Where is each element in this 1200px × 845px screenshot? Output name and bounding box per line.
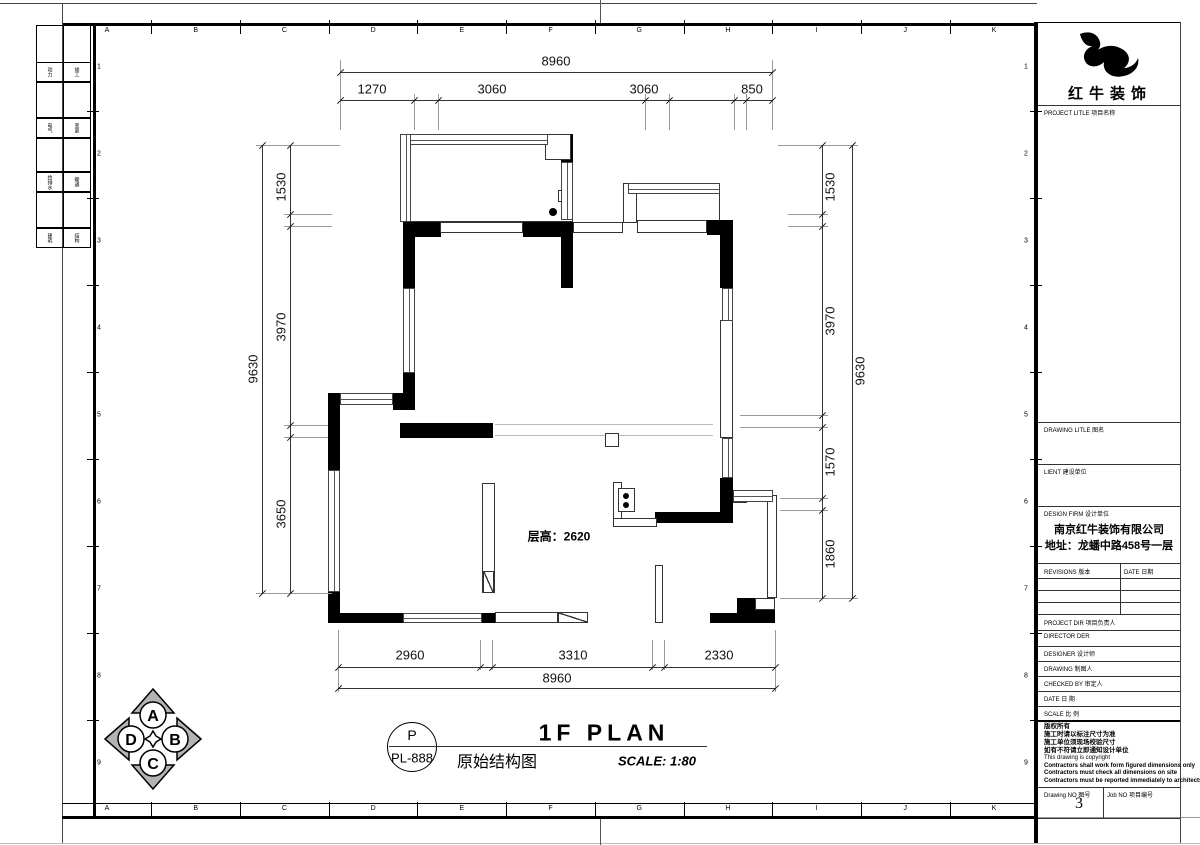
- stamp-cell: 变更: [63, 118, 91, 138]
- row-tick: [87, 285, 99, 286]
- col-letter: C: [282, 805, 287, 812]
- dim-bottom-seg: 2960: [396, 648, 425, 663]
- drawing-title-en: 1F PLAN: [539, 720, 670, 747]
- stamp-cell: 暖通: [63, 172, 91, 192]
- extension-line: [338, 630, 339, 692]
- col-letter: G: [636, 805, 641, 812]
- thin-wall: [655, 565, 663, 623]
- thin-wall: [767, 495, 777, 598]
- window-horizontal: [340, 393, 393, 405]
- stamp-cell: [63, 192, 91, 228]
- copyright-note-line: This drawing is copyright: [1044, 755, 1200, 763]
- row-number: 9: [97, 760, 101, 767]
- window-vertical: [403, 288, 415, 373]
- col-tick: [417, 20, 418, 34]
- compass-label-w: D: [125, 732, 137, 749]
- title-block-line: [1038, 676, 1180, 677]
- col-tick: [240, 20, 241, 34]
- col-tick: [240, 802, 241, 816]
- tb-row-label: CHECKED BY 审定人: [1044, 679, 1103, 688]
- copyright-note-line: Contractors shall work form figured dime…: [1044, 763, 1200, 771]
- dim-top-seg: 3060: [478, 82, 507, 97]
- row-number: 8: [1024, 673, 1028, 680]
- row-number: 6: [97, 499, 101, 506]
- col-tick: [861, 802, 862, 816]
- door-hatch: [483, 571, 494, 593]
- dimension-line: [340, 72, 772, 73]
- tb-firm-address: 地址：龙蟠中路458号一层: [1045, 537, 1173, 553]
- col-letter: D: [371, 805, 376, 812]
- extension-line: [740, 427, 828, 428]
- tb-job-no-label: Job NO 项目编号: [1107, 790, 1153, 799]
- title-block-line: [1038, 706, 1180, 707]
- stamp-row: [36, 139, 92, 173]
- col-tick: [329, 20, 330, 34]
- wall-segment: [393, 393, 415, 410]
- tb-row-label: DRAWING 制图人: [1044, 664, 1092, 673]
- stamp-cell: [36, 25, 64, 63]
- thin-wall: [440, 222, 523, 233]
- col-letter: E: [459, 27, 464, 34]
- row-number: 1: [1024, 64, 1028, 71]
- stamp-cell: 结构: [63, 228, 91, 248]
- dim-bottom-overall: 8960: [543, 671, 572, 686]
- row-tick: [1030, 459, 1042, 460]
- row-tick: [1030, 633, 1042, 634]
- col-tick: [506, 802, 507, 816]
- row-tick: [1030, 111, 1042, 112]
- dim-left-overall: 9630: [246, 355, 261, 384]
- col-tick: [950, 20, 951, 34]
- window-vertical: [722, 438, 733, 478]
- row-number: 7: [97, 586, 101, 593]
- dim-right-seg: 1530: [823, 173, 838, 202]
- thin-wall: [637, 220, 707, 233]
- frame-line: [0, 3, 1037, 4]
- tb-revisions-header: REVISIONS 版本: [1044, 567, 1090, 576]
- row-number: 4: [97, 325, 101, 332]
- pipe-dot: [623, 493, 629, 499]
- wall-segment: [720, 235, 733, 288]
- tb-row-label: PROJECT DIR 项目负责人: [1044, 618, 1116, 627]
- window-horizontal: [400, 134, 548, 145]
- col-tick: [772, 802, 773, 816]
- row-tick: [87, 372, 99, 373]
- partition-line: [495, 424, 713, 425]
- extension-line: [256, 593, 332, 594]
- col-tick: [595, 20, 596, 34]
- tb-row-label: DESIGNER 设计师: [1044, 649, 1095, 658]
- wall-segment: [523, 222, 573, 237]
- row-number: 1: [97, 64, 101, 71]
- title-block-line: [1038, 105, 1180, 106]
- row-tick: [87, 546, 99, 547]
- extension-line: [256, 145, 340, 146]
- title-block-line: [1038, 614, 1180, 615]
- title-block-line: [1038, 720, 1180, 722]
- col-letter: K: [992, 27, 997, 34]
- compass-rose: A B C D: [104, 688, 202, 792]
- stamp-row: [36, 25, 92, 63]
- col-letter: A: [105, 27, 110, 34]
- tb-client-label: LIENT 建设单位: [1044, 467, 1087, 476]
- discipline-stamp-strip: 动力竣工电气变更给排水暖通建筑结构: [36, 25, 92, 249]
- col-tick: [329, 802, 330, 816]
- copyright-note-line: 如有不符请立即通知设计单位: [1044, 747, 1200, 755]
- title-block-line: [1038, 422, 1180, 423]
- wall-segment: [655, 512, 733, 523]
- copyright-note-line: 版权所有: [1044, 723, 1200, 731]
- wall-segment: [403, 373, 415, 393]
- wall-segment: [400, 423, 493, 438]
- col-letter: C: [282, 27, 287, 34]
- row-number: 2: [97, 151, 101, 158]
- dim-right-seg: 1860: [823, 540, 838, 569]
- col-letter: J: [904, 27, 908, 34]
- floor-height-label: 层高：2620: [528, 528, 591, 545]
- drawing-title-cn: 原始结构图: [457, 748, 537, 772]
- col-letter: I: [816, 27, 818, 34]
- title-block-line: [1038, 787, 1180, 788]
- col-letter: H: [725, 805, 730, 812]
- title-block-line: [1038, 563, 1180, 564]
- col-letter: B: [193, 27, 198, 34]
- stamp-cell: [36, 192, 64, 228]
- row-tick: [87, 459, 99, 460]
- row-tick: [1030, 720, 1042, 721]
- drawing-bubble-code: PL-888: [391, 751, 433, 766]
- stamp-cell: [63, 138, 91, 172]
- col-tick: [684, 802, 685, 816]
- stamp-cell: [36, 82, 64, 118]
- thin-wall: [755, 598, 775, 610]
- wall-segment: [403, 222, 441, 237]
- title-block-line: [1038, 590, 1180, 591]
- wall-segment: [328, 613, 403, 623]
- title-block-line: [1038, 691, 1180, 692]
- drawing-sheet: AABBCCDDEEFFGGHHIIJJKK112233445566778899…: [0, 0, 1200, 845]
- stamp-cell: [63, 25, 91, 63]
- tb-project-label: PROJECT LITLE 项目名称: [1044, 108, 1115, 117]
- dim-top-seg: 850: [741, 82, 763, 97]
- tb-row-label: DIRECTOR DER: [1044, 634, 1090, 640]
- dimension-line: [340, 100, 772, 101]
- dim-left-seg: 1530: [274, 173, 289, 202]
- row-number: 4: [1024, 325, 1028, 332]
- row-number: 7: [1024, 586, 1028, 593]
- row-number: 8: [97, 673, 101, 680]
- frame-line: [62, 816, 1037, 819]
- extension-line: [740, 415, 828, 416]
- company-logo-icon: [1074, 30, 1144, 82]
- stamp-row: 动力竣工: [36, 63, 92, 83]
- dim-top-seg: 3060: [630, 82, 659, 97]
- copyright-note-line: 施工单位须现场校验尺寸: [1044, 739, 1200, 747]
- dim-top-seg: 1270: [358, 82, 387, 97]
- row-number: 5: [1024, 412, 1028, 419]
- window-vertical: [328, 470, 340, 592]
- col-letter: A: [105, 805, 110, 812]
- title-block-line: [1038, 506, 1180, 507]
- extension-line: [778, 145, 858, 146]
- compass-center-star: [145, 731, 161, 747]
- row-number: 9: [1024, 760, 1028, 767]
- row-tick: [1030, 198, 1042, 199]
- wall-segment: [707, 220, 733, 235]
- row-number: 2: [1024, 151, 1028, 158]
- row-number: 5: [97, 412, 101, 419]
- extension-line: [775, 630, 776, 692]
- tb-drawing-no: 3: [1075, 795, 1083, 813]
- thin-wall: [495, 612, 558, 623]
- col-letter: J: [904, 805, 908, 812]
- tb-date-header: DATE 日期: [1124, 567, 1153, 576]
- col-letter: F: [548, 805, 552, 812]
- compass-label-n: A: [147, 708, 159, 725]
- title-block-line: [1038, 661, 1180, 662]
- stamp-cell: 给排水: [36, 172, 64, 192]
- col-letter: H: [725, 27, 730, 34]
- dim-left-seg: 3650: [274, 500, 289, 529]
- thin-wall: [720, 320, 733, 438]
- frame-line: [600, 819, 601, 845]
- col-letter: F: [548, 27, 552, 34]
- drawing-bubble-top: P: [407, 727, 416, 743]
- tb-drawing-label: DRAWING LITLE 图名: [1044, 425, 1104, 434]
- wall-segment: [710, 613, 775, 623]
- dim-bottom-seg: 2330: [705, 648, 734, 663]
- title-block-line: [1103, 787, 1104, 818]
- col-letter: E: [459, 805, 464, 812]
- row-tick: [1030, 546, 1042, 547]
- stamp-row: [36, 83, 92, 119]
- col-letter: G: [636, 27, 641, 34]
- dimension-line: [338, 667, 775, 668]
- stamp-cell: 动力: [36, 62, 64, 82]
- col-letter: D: [371, 27, 376, 34]
- row-number: 3: [1024, 238, 1028, 245]
- wall-segment: [328, 393, 340, 470]
- title-block-line: [1038, 630, 1180, 631]
- frame-line: [600, 0, 601, 23]
- door-hatch: [558, 612, 588, 623]
- tb-copyright-notes: 版权所有施工时请以标注尺寸为准施工单位须现场校验尺寸如有不符请立即通知设计单位T…: [1044, 723, 1200, 785]
- row-tick: [87, 633, 99, 634]
- pipe-dot: [549, 208, 557, 216]
- frame-line: [1036, 22, 1181, 23]
- pipe-dot: [746, 602, 754, 610]
- extension-line: [780, 598, 858, 599]
- copyright-note-line: Contractors must be reported immediately…: [1044, 778, 1200, 786]
- title-block-line: [1120, 563, 1121, 614]
- copyright-note-line: Contractors must check all dimensions on…: [1044, 770, 1200, 778]
- dim-top-overall: 8960: [542, 54, 571, 69]
- thin-wall: [613, 518, 657, 527]
- frame-line: [62, 803, 1037, 804]
- stamp-cell: 建筑: [36, 228, 64, 248]
- window-vertical: [722, 288, 733, 321]
- col-letter: K: [992, 805, 997, 812]
- col-tick: [861, 20, 862, 34]
- col-tick: [151, 802, 152, 816]
- frame-line: [62, 23, 1037, 26]
- dimension-line: [338, 688, 775, 689]
- stamp-cell: [63, 82, 91, 118]
- stamp-row: 电气变更: [36, 119, 92, 139]
- title-block-line: [1038, 464, 1180, 465]
- wall-segment: [561, 237, 573, 288]
- col-tick: [684, 20, 685, 34]
- copyright-note-line: 施工时请以标注尺寸为准: [1044, 731, 1200, 739]
- dim-right-overall: 9630: [853, 357, 868, 386]
- col-tick: [772, 20, 773, 34]
- dim-left-seg: 3970: [274, 313, 289, 342]
- row-tick: [87, 720, 99, 721]
- title-block-line: [1038, 646, 1180, 647]
- compass-label-s: C: [147, 756, 159, 773]
- stamp-row: 给排水暖通: [36, 173, 92, 193]
- stamp-cell: 电气: [36, 118, 64, 138]
- partition-line: [495, 435, 713, 436]
- col-letter: I: [816, 805, 818, 812]
- company-logo-text: 红牛装饰: [1068, 83, 1152, 104]
- pipe-dot: [623, 502, 629, 508]
- thin-wall: [605, 433, 619, 447]
- window-vertical: [561, 162, 573, 220]
- dim-bottom-seg: 3310: [559, 648, 588, 663]
- wall-segment: [403, 237, 415, 288]
- tb-firm-name: 南京红牛装饰有限公司: [1054, 521, 1164, 537]
- drawing-scale: SCALE: 1:80: [618, 754, 696, 769]
- window-horizontal: [403, 613, 482, 623]
- title-block-line: [1038, 818, 1180, 819]
- col-tick: [506, 20, 507, 34]
- row-number: 6: [1024, 499, 1028, 506]
- tb-firm-label: DESIGN FIRM 设计单位: [1044, 509, 1109, 518]
- title-block-line: [1038, 602, 1180, 603]
- window-horizontal: [733, 490, 773, 502]
- dimension-line: [262, 145, 263, 593]
- dim-right-seg: 1570: [823, 448, 838, 477]
- row-number: 3: [97, 238, 101, 245]
- window-vertical: [400, 134, 411, 222]
- tb-row-label: SCALE 比 例: [1044, 709, 1079, 718]
- compass-label-e: B: [169, 732, 181, 749]
- col-tick: [151, 20, 152, 34]
- frame-line: [1180, 22, 1181, 843]
- col-tick: [950, 802, 951, 816]
- thin-wall: [545, 134, 571, 160]
- tb-drawing-no-label: Drawing NO 图号: [1044, 790, 1090, 799]
- frame-line: [93, 23, 96, 819]
- title-block-line: [1038, 578, 1180, 579]
- stamp-cell: 竣工: [63, 62, 91, 82]
- stamp-row: [36, 193, 92, 229]
- window-horizontal: [628, 183, 720, 194]
- row-tick: [1030, 372, 1042, 373]
- col-letter: B: [193, 805, 198, 812]
- wall-segment: [482, 613, 495, 623]
- stamp-cell: [36, 138, 64, 172]
- dim-right-seg: 3970: [823, 307, 838, 336]
- thin-wall: [618, 488, 635, 512]
- tb-row-label: DATE 日 期: [1044, 694, 1075, 703]
- stamp-row: 建筑结构: [36, 229, 92, 249]
- thin-wall: [573, 222, 623, 233]
- col-tick: [417, 802, 418, 816]
- col-tick: [595, 802, 596, 816]
- row-tick: [1030, 285, 1042, 286]
